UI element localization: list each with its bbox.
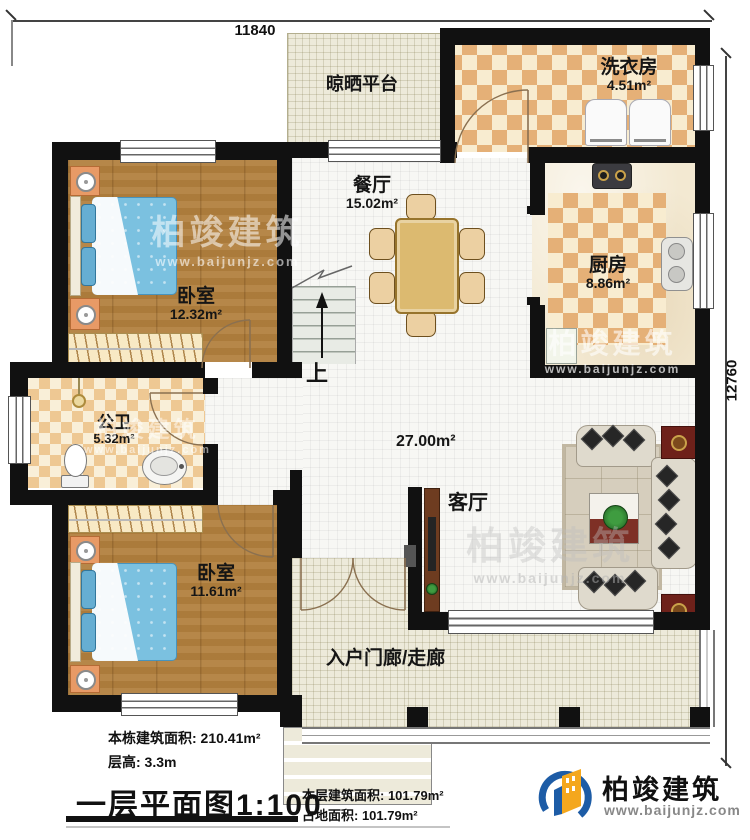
toilet [64, 444, 87, 477]
room-label-kitchen: 厨房 8.86m² [562, 255, 654, 292]
pillow [81, 247, 96, 286]
dining-table [395, 218, 459, 314]
room-name: 厨房 [562, 255, 654, 276]
table-medallion-icon [671, 435, 687, 451]
wall [695, 127, 710, 215]
window [328, 140, 441, 162]
entry-double-door [296, 552, 412, 614]
dining-chair [369, 228, 395, 260]
dimension-extension-line [11, 20, 13, 66]
small-plant-icon [426, 583, 438, 595]
bed-headboard [70, 562, 81, 662]
nightstand [70, 166, 100, 196]
room-label-bathroom: 公卫 5.32m² [68, 413, 160, 447]
lamp-icon [76, 670, 96, 690]
footprint-stat: 占地面积: 101.79m² [302, 805, 418, 824]
room-label-laundry: 洗衣房 4.51m² [583, 57, 675, 94]
wardrobe-rail [69, 519, 202, 521]
room-area: 11.61m² [168, 584, 264, 600]
wall [52, 490, 68, 712]
washing-machine [585, 99, 627, 146]
porch-column [690, 707, 710, 727]
stairs-break-and-arrow [292, 266, 356, 370]
lamp-icon [76, 541, 96, 561]
floor-area-stat: 本层建筑面积: 101.79m² [302, 785, 444, 804]
window [120, 140, 216, 163]
floor-plan: 11840 12760 [0, 0, 750, 840]
window [8, 396, 31, 464]
room-label-dining: 餐厅 15.02m² [326, 175, 418, 212]
faucet-icon [179, 464, 184, 469]
door-jamb [527, 297, 540, 305]
room-name: 公卫 [68, 413, 160, 432]
room-label-living: 客厅 [448, 492, 488, 514]
wardrobe [68, 333, 203, 363]
dining-chair [459, 228, 485, 260]
building-area-note: 本栋建筑面积: 210.41m² [108, 728, 260, 748]
wardrobe-rail [69, 348, 202, 350]
wall [530, 365, 710, 378]
top-dimension-line [12, 20, 712, 22]
room-name: 洗衣房 [583, 57, 675, 78]
title-underline [66, 816, 298, 822]
tv [428, 517, 436, 571]
wall [10, 490, 218, 505]
wall [528, 147, 710, 163]
dining-chair [406, 311, 436, 337]
porch-column [281, 707, 302, 727]
room-area: 8.86m² [562, 276, 654, 292]
side-table [661, 426, 697, 459]
washing-machine [629, 99, 671, 146]
room-name: 卧室 [168, 563, 264, 584]
room-label-drying-platform: 晾晒平台 [326, 74, 398, 94]
top-dimension-label: 11840 [220, 22, 290, 39]
ceiling-lamp-icon [72, 394, 86, 408]
wall [440, 28, 710, 45]
door-jamb [527, 206, 540, 214]
potted-plant-icon [603, 505, 628, 530]
room-area-living: 27.00m² [396, 433, 456, 451]
bedroom-top-door [198, 316, 256, 372]
floor-height-note: 层高: 3.3m [108, 752, 176, 772]
sink-basin [668, 243, 685, 260]
wardrobe [68, 505, 203, 533]
bathroom-sink [142, 449, 187, 485]
lamp-icon [76, 305, 96, 325]
sink-basin [150, 456, 178, 476]
burner-icon [615, 170, 626, 181]
sink-basin [668, 266, 685, 283]
room-area: 15.02m² [326, 196, 418, 212]
stove [592, 163, 632, 189]
window [448, 610, 654, 634]
room-name: 餐厅 [326, 175, 418, 196]
room-label-bedroom-top: 卧室 12.32m² [150, 286, 242, 323]
window [121, 693, 238, 716]
pillow [81, 570, 96, 609]
wall [408, 612, 450, 630]
nightstand [70, 298, 100, 330]
room-area: 4.51m² [583, 78, 675, 94]
refrigerator [546, 328, 577, 364]
wall [650, 612, 710, 630]
room-label-bedroom-bottom: 卧室 11.61m² [168, 563, 264, 600]
wall [695, 305, 710, 630]
dining-chair [459, 272, 485, 304]
brand-logo-icon [536, 764, 600, 828]
kitchen-sink [661, 237, 693, 291]
wall [52, 695, 123, 712]
title-underline-light [66, 826, 450, 828]
pillow [81, 613, 96, 652]
pillow [81, 204, 96, 243]
wall [10, 362, 28, 398]
right-dimension-label: 12760 [724, 351, 741, 411]
corridor-floor [205, 378, 303, 505]
wall [290, 470, 302, 558]
wall [695, 28, 710, 67]
wall [52, 362, 205, 378]
room-name: 卧室 [150, 286, 242, 307]
nightstand [70, 665, 100, 693]
right-dimension-line [725, 56, 727, 766]
wall [203, 444, 218, 490]
dimension-tick [5, 9, 16, 20]
room-area: 5.32m² [68, 432, 160, 447]
laundry-door [453, 88, 531, 166]
stairs-up-arrow-icon [316, 292, 328, 308]
brand-website: www.baijunjz.com [604, 802, 741, 818]
porch-railing [302, 727, 710, 744]
porch-column [559, 707, 580, 727]
porch-column [407, 707, 428, 727]
room-label-porch: 入户门廊/走廊 [326, 648, 445, 669]
nightstand [70, 536, 100, 564]
dining-chair [369, 272, 395, 304]
window [693, 65, 714, 131]
window [693, 213, 714, 309]
dimension-tick [703, 9, 714, 20]
bedroom-bottom-door [216, 503, 276, 561]
porch-floor-bottom [408, 630, 700, 727]
stairs-up-label: 上 [306, 362, 328, 387]
room-area: 12.32m² [150, 307, 242, 323]
wall [52, 142, 68, 362]
burner-icon [598, 170, 609, 181]
bed-headboard [70, 196, 81, 296]
lamp-icon [76, 172, 96, 192]
